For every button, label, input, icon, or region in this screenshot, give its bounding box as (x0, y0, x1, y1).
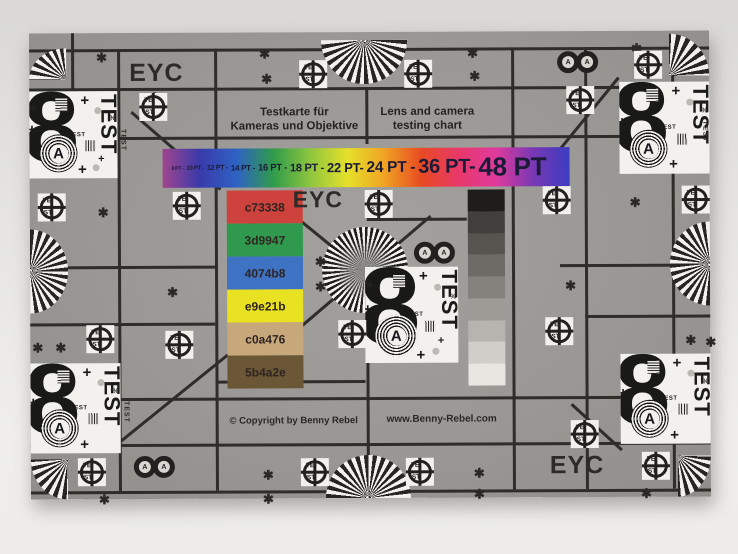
gray-step (468, 255, 505, 277)
resolution-pattern (646, 89, 658, 102)
plus-mark-icon: + (620, 386, 627, 401)
a-glyph: A (576, 51, 598, 73)
percent-mark: % (30, 105, 36, 112)
test-small-label: TEST (660, 396, 677, 402)
asterisk-icon: ✱ (474, 467, 485, 480)
test-vertical-label: TEST (100, 366, 120, 426)
crosshair-target-icon: TEST (165, 331, 193, 359)
swatch-hex-label: c0a476 (245, 332, 285, 346)
siemens-fan-bottom-edge (326, 455, 411, 498)
crosshair-target-icon: TEST (545, 317, 573, 345)
a-glyph: A (433, 242, 455, 264)
grayscale-step-wedge (468, 189, 506, 385)
crosshair-te: TE (411, 463, 419, 470)
swatch-hex-label: c73338 (245, 200, 285, 214)
pt-size-label: 24 PT - (366, 158, 415, 176)
test-vertical-small-label: TEST (123, 401, 130, 423)
plus-mark-icon: + (98, 154, 104, 165)
crosshair-target-icon: TEST (571, 420, 599, 448)
crosshair-te: TE (43, 198, 51, 205)
crosshair-te: TE (83, 463, 91, 470)
swatch-hex-label: 5b4a2e (245, 365, 286, 379)
color-swatch-column: c73338 3d9947 4074b8 e9e21b c0a476 5b4a2… (227, 190, 304, 388)
crosshair-st: ST (307, 475, 315, 482)
test-vertical-label: TEST (690, 357, 710, 417)
plus-mark-icon: + (670, 427, 679, 442)
circled-a-rings-icon: A (631, 400, 669, 438)
pt-size-label: 18 PT - (290, 162, 324, 174)
asterisk-icon: ✱ (641, 487, 652, 500)
test-patch-8-center: 8 A TEST + + + + % % TEST (365, 267, 458, 363)
siemens-fan-top-edge (321, 40, 407, 84)
plus-mark-icon: + (669, 157, 678, 172)
title-german-line2: Kameras und Objektive (219, 119, 369, 134)
crosshair-target-icon: TEST (642, 452, 670, 480)
test-small-label: TEST (406, 312, 423, 318)
gray-dot-icon (94, 107, 101, 114)
crosshair-st: ST (179, 208, 187, 215)
grid-line (71, 33, 74, 91)
crosshair-target-icon: TEST (338, 320, 366, 348)
resolution-pattern (425, 320, 435, 331)
crosshair-te: TE (550, 322, 558, 329)
title-german: Testkarte für Kameras und Objektive (219, 105, 369, 134)
a-glyph: A (153, 456, 175, 478)
gray-step (468, 320, 505, 342)
crosshair-st: ST (344, 337, 352, 344)
crosshair-te: TE (304, 65, 312, 72)
title-german-line1: Testkarte für (219, 105, 369, 120)
asterisk-icon: ✱ (263, 492, 274, 505)
circled-a-rings-icon: A (375, 315, 417, 357)
resolution-pattern (647, 361, 659, 374)
title-english-line2: testing chart (352, 119, 502, 134)
crosshair-target-icon: TEST (406, 458, 434, 486)
crosshair-te: TE (306, 463, 314, 470)
color-swatch-brown: 5b4a2e (227, 355, 303, 388)
title-english: Lens and camera testing chart (352, 104, 502, 133)
copyright-text: © Copyright by Benny Rebel (219, 415, 369, 427)
a-glyph: A (49, 144, 68, 163)
crosshair-te: TE (687, 191, 695, 198)
pt-size-label: 16 PT - (258, 162, 287, 173)
swatch-hex-label: 4074b8 (245, 266, 286, 280)
crosshair-target-icon: TEST (566, 86, 594, 114)
photo-background: 8 PT - 10 PT - 12 PT - 14 PT - 16 PT - 1… (0, 0, 738, 554)
crosshair-st: ST (648, 468, 656, 475)
a-glyph: A (50, 419, 69, 438)
crosshair-te: TE (170, 336, 178, 343)
plus-mark-icon: + (417, 347, 426, 362)
grid-line (367, 218, 467, 221)
siemens-fan-corner-top-left (29, 48, 66, 79)
test-small-label: TEST (68, 132, 85, 138)
pt-size-label: 36 PT- (418, 156, 475, 179)
asterisk-icon: ✱ (32, 341, 43, 354)
percent-mark: % (702, 379, 708, 386)
crosshair-te: TE (144, 98, 152, 105)
crosshair-target-icon: TEST (78, 458, 106, 486)
percent-mark: % (113, 388, 119, 395)
crosshair-st: ST (551, 334, 559, 341)
crosshair-te: TE (576, 425, 584, 432)
crosshair-st: ST (412, 474, 420, 481)
crosshair-te: TE (343, 325, 351, 332)
asterisk-icon: ✱ (630, 196, 641, 209)
pt-size-label: 10 PT - (186, 165, 204, 171)
color-swatch-yellow: e9e21b (227, 289, 303, 322)
test-vertical-small-label: TEST (119, 129, 126, 151)
test-patch-8-bottom-left: 8 A TEST + + + % TEST (30, 363, 120, 453)
crosshair-st: ST (577, 437, 585, 444)
gray-dot-icon (432, 347, 439, 354)
asterisk-icon: ✱ (99, 493, 110, 506)
asterisk-icon: ✱ (469, 70, 480, 83)
plus-mark-icon: + (419, 269, 428, 284)
gray-dot-icon (97, 379, 104, 386)
eyc-label-middle: EYC (293, 186, 343, 213)
color-swatch-green: 3d9947 (227, 223, 303, 256)
eyc-label-top: EYC (129, 59, 184, 88)
gray-step (468, 211, 505, 233)
plus-mark-icon: + (673, 355, 682, 370)
gray-step (468, 189, 505, 211)
resolution-pattern (56, 98, 68, 111)
color-swatch-tan: c0a476 (227, 322, 303, 355)
asterisk-icon: ✱ (315, 280, 326, 293)
crosshair-st: ST (145, 109, 153, 116)
double-circle-8-icon: AA (557, 51, 598, 73)
asterisk-icon: ✱ (263, 468, 274, 481)
plus-mark-icon: + (438, 336, 444, 347)
crosshair-target-icon: TEST (365, 190, 393, 218)
asterisk-icon: ✱ (685, 334, 696, 347)
a-glyph: A (387, 326, 406, 345)
pt-size-label: 8 PT - (172, 165, 184, 171)
grid-line (30, 323, 215, 327)
asterisk-icon: ✱ (474, 488, 485, 501)
test-vertical-label: TEST (97, 94, 117, 154)
eyc-label-bottom: EYC (550, 451, 605, 480)
crosshair-te: TE (571, 91, 579, 98)
crosshair-te: TE (409, 65, 417, 72)
asterisk-icon: ✱ (96, 51, 107, 64)
plus-mark-icon: + (80, 93, 89, 108)
resolution-pattern (86, 140, 96, 151)
plus-mark-icon: + (83, 365, 92, 380)
crosshair-target-icon: TEST (38, 193, 66, 221)
crosshair-te: TE (639, 56, 647, 63)
gray-step (468, 342, 505, 364)
resolution-pattern (677, 133, 687, 144)
test-small-label: TEST (659, 125, 676, 131)
rainbow-pt-bar: 8 PT - 10 PT - 12 PT - 14 PT - 16 PT - 1… (162, 147, 569, 188)
asterisk-icon: ✱ (55, 341, 66, 354)
resolution-pattern (678, 404, 688, 415)
percent-mark: % (366, 282, 372, 289)
resolution-pattern (393, 275, 405, 288)
title-english-line1: Lens and camera (352, 104, 502, 119)
crosshair-target-icon: TEST (86, 325, 114, 353)
plus-mark-icon: + (78, 163, 87, 178)
test-patch-8-top-left: 8 A TEST + + + + % % TEST (29, 91, 117, 178)
crosshair-te: TE (370, 195, 378, 202)
crosshair-te: TE (647, 457, 655, 464)
swatch-hex-label: 3d9947 (245, 233, 286, 247)
plus-mark-icon: + (29, 123, 36, 138)
grid-line (31, 442, 711, 448)
crosshair-st: ST (640, 67, 648, 74)
crosshair-st: ST (572, 103, 580, 110)
percent-mark: % (109, 115, 115, 122)
crosshair-st: ST (549, 203, 557, 210)
siemens-fan-corner-top-right (669, 34, 709, 76)
asterisk-icon: ✱ (167, 286, 178, 299)
pt-size-label: 12 PT - (207, 165, 228, 172)
crosshair-st: ST (84, 475, 92, 482)
gray-dot-icon (687, 370, 694, 377)
test-small-label: TEST (70, 406, 87, 412)
crosshair-target-icon: TEST (299, 60, 327, 88)
gray-step (468, 233, 505, 255)
crosshair-st: ST (92, 342, 100, 349)
pt-size-label: 48 PT (478, 151, 546, 182)
crosshair-st: ST (171, 347, 179, 354)
crosshair-target-icon: TEST (404, 60, 432, 88)
double-circle-8-icon: AA (134, 456, 175, 478)
gray-dot-icon (686, 98, 693, 105)
test-patch-8-top-right: 8 A TEST + + + % TEST (619, 82, 709, 174)
gray-step (468, 298, 505, 320)
a-glyph: A (640, 409, 659, 428)
asterisk-icon: ✱ (705, 335, 716, 348)
crosshair-te: TE (91, 330, 99, 337)
asterisk-icon: ✱ (259, 47, 270, 60)
pt-size-label: 22 PT- (327, 160, 364, 175)
plus-mark-icon: + (30, 396, 37, 411)
crosshair-st: ST (371, 206, 379, 213)
asterisk-icon: ✱ (98, 206, 109, 219)
asterisk-icon: ✱ (261, 72, 272, 85)
circled-a-rings-icon: A (41, 409, 79, 447)
color-swatch-red: c73338 (227, 190, 303, 223)
asterisk-icon: ✱ (315, 255, 326, 268)
plus-mark-icon: + (365, 302, 372, 317)
gray-step (468, 364, 505, 386)
crosshair-st: ST (44, 210, 52, 217)
siemens-fan-right-edge (670, 222, 710, 306)
plus-mark-icon: + (80, 437, 89, 452)
color-swatch-blue: 4074b8 (227, 256, 303, 289)
crosshair-target-icon: TEST (543, 186, 571, 214)
double-circle-8-icon: AA (414, 242, 455, 264)
test-vertical-small-label: TEST (701, 121, 708, 143)
crosshair-te: TE (178, 197, 186, 204)
crosshair-te: TE (548, 191, 556, 198)
crosshair-st: ST (410, 76, 418, 83)
plus-mark-icon: + (671, 83, 680, 98)
circled-a-rings-icon: A (39, 134, 77, 172)
crosshair-target-icon: TEST (682, 186, 710, 214)
grid-line (31, 396, 711, 402)
gray-dot-icon (93, 164, 100, 171)
circled-a-rings-icon: A (629, 130, 667, 168)
siemens-fan-left-edge (30, 229, 68, 313)
resolution-pattern (57, 370, 69, 383)
percent-mark: % (701, 107, 707, 114)
resolution-pattern (88, 414, 98, 425)
plus-mark-icon: + (619, 115, 626, 130)
crosshair-st: ST (305, 77, 313, 84)
test-chart-card: 8 PT - 10 PT - 12 PT - 14 PT - 16 PT - 1… (29, 31, 711, 500)
asterisk-icon: ✱ (565, 279, 576, 292)
crosshair-target-icon: TEST (634, 51, 662, 79)
a-glyph: A (639, 139, 658, 158)
crosshair-st: ST (688, 202, 696, 209)
crosshair-target-icon: TEST (139, 93, 167, 121)
gray-step (468, 277, 505, 299)
test-patch-8-bottom-right: 8 A TEST + + + % TEST (620, 354, 710, 444)
grid-line (585, 315, 710, 319)
website-text: www.Benny-Rebel.com (367, 413, 517, 425)
crosshair-target-icon: TEST (173, 192, 201, 220)
percent-mark: % (450, 293, 456, 300)
swatch-hex-label: e9e21b (245, 299, 286, 313)
crosshair-target-icon: TEST (301, 458, 329, 486)
asterisk-icon: ✱ (467, 47, 478, 60)
grid-line (117, 135, 671, 140)
pt-size-label: 14 PT - (231, 164, 255, 173)
